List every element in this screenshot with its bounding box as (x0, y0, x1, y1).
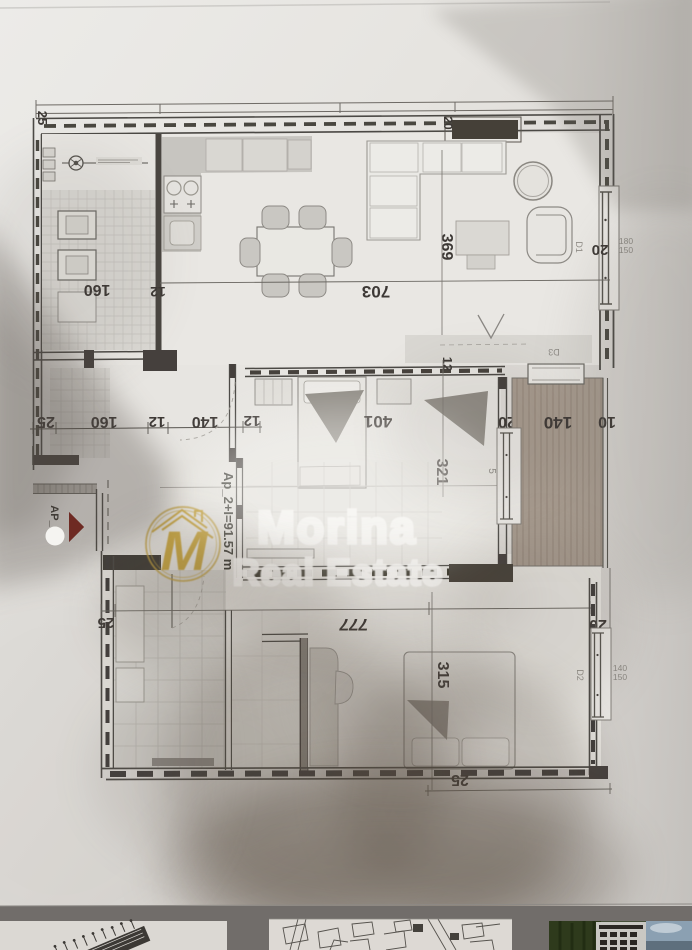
svg-text:25: 25 (35, 111, 50, 125)
svg-text:703: 703 (362, 282, 390, 301)
svg-text:140: 140 (192, 413, 219, 430)
svg-text:369: 369 (438, 234, 455, 261)
svg-text:20: 20 (441, 116, 455, 130)
svg-text:12: 12 (149, 413, 166, 430)
svg-text:D1: D1 (574, 241, 584, 253)
svg-text:150: 150 (613, 672, 627, 682)
svg-text:D3: D3 (548, 347, 560, 357)
